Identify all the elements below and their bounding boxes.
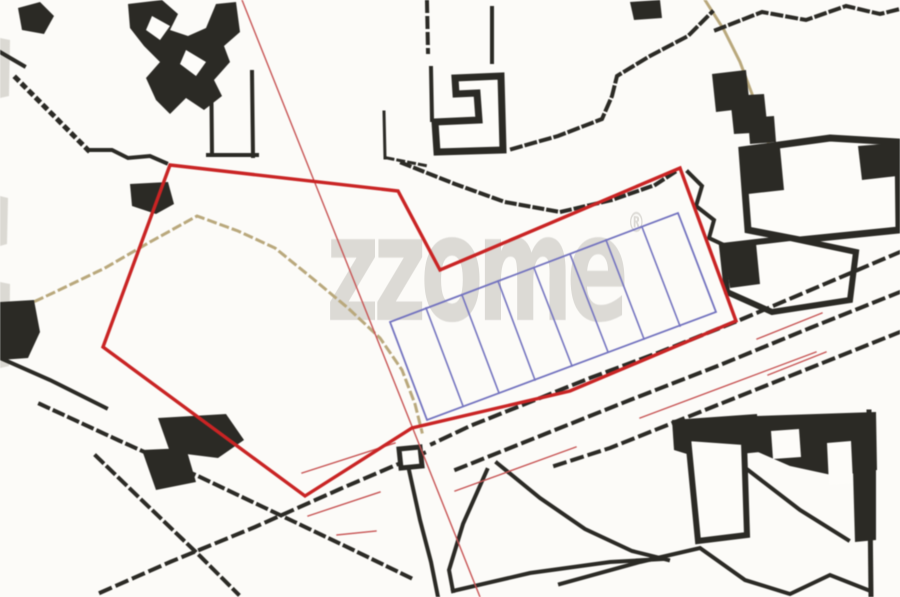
cadastral-map: zzome® [0,0,900,597]
plot-divider-1 [426,308,463,406]
boundary-dash-ne-1 [512,12,712,149]
plot-divider-6 [606,240,644,339]
site-plan-linework [0,0,900,597]
building-topmid-wall [431,68,432,120]
boundary-jag-tl [88,150,166,163]
plot-divider-2 [462,295,499,393]
wall-tl-v1 [211,50,212,155]
building-bl-2 [142,448,196,490]
scan-smudge-1 [0,38,10,98]
road-s-edge-2 [497,463,668,560]
scan-smudge-2 [0,196,8,246]
line-midleft [0,358,106,408]
field-edge-west [449,470,487,591]
building-br-mass2 [853,468,876,542]
wall-tl-v2 [252,72,253,156]
road-s-edge-1 [409,470,438,597]
survey-line-diagonal [242,0,480,597]
junction-hut [399,447,422,468]
building-tr-3 [748,116,776,144]
wall-br-zigzag [560,548,868,594]
road-sw-edge [95,453,424,595]
building-tr-frame-fill2 [858,143,897,180]
boundary-dotted-tl [16,78,88,150]
building-blob-tl-a [18,2,54,34]
plot-divider-4 [534,268,572,366]
blob-midleft [0,300,40,360]
building-topmid [435,76,503,152]
building-br-hole1 [771,429,801,459]
plot-divider-3 [498,281,535,380]
survey-tick [337,531,376,535]
wall-v3 [384,112,385,158]
pole-dash-top-1 [427,2,428,52]
boundary-dash-top [716,6,900,30]
building-tr-frame-fill1 [744,148,784,194]
plot-divider-5 [570,254,608,352]
building-br-quad [688,438,747,541]
blob-top [630,0,662,20]
plot-divider-7 [642,227,680,326]
building-br-hole2 [827,441,853,485]
survey-seg-b [308,492,380,516]
footpath-tan [12,216,422,432]
survey-seg-c [455,447,576,491]
